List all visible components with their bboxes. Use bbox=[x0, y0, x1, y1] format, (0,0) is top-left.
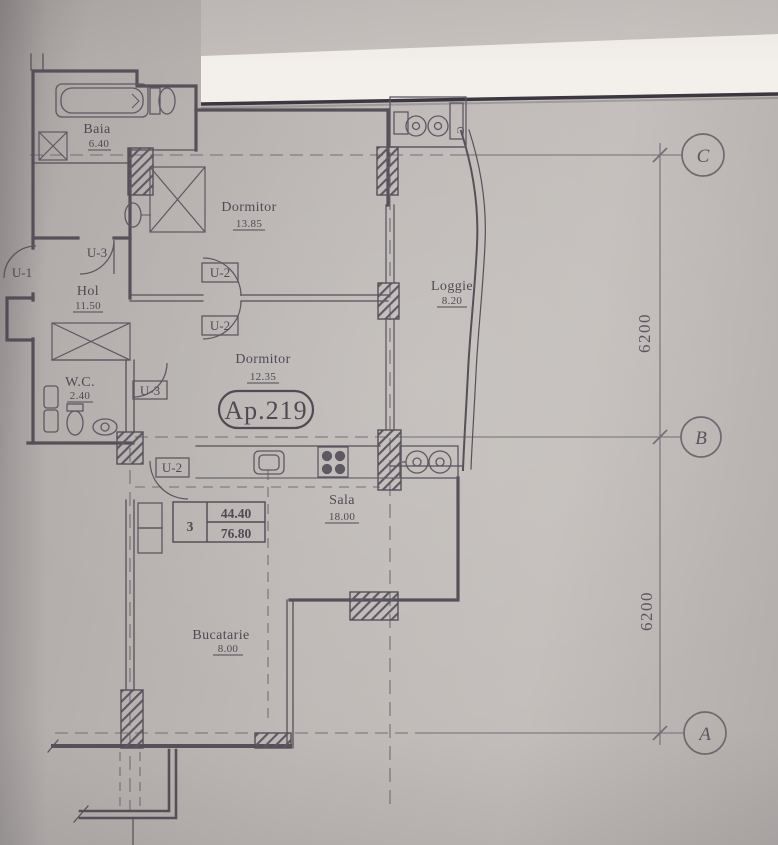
room-area-baia: 6.40 bbox=[89, 138, 110, 150]
wc-radiator-upper bbox=[44, 386, 58, 408]
room-label-dormitor2: Dormitor bbox=[235, 352, 290, 367]
column-corridor bbox=[117, 432, 143, 464]
room-area-dormitor1: 13.85 bbox=[236, 218, 262, 230]
room-label-hol: Hol bbox=[77, 284, 99, 299]
bathtub-inner bbox=[61, 88, 143, 113]
scanned-floor-plan-photo: { "plan": { "apartment": "Ap.219", "room… bbox=[0, 0, 778, 845]
stove-burner-4 bbox=[336, 465, 345, 474]
baia-sink bbox=[159, 88, 175, 114]
ventilation-shafts bbox=[39, 132, 205, 360]
grid-letter-a: A bbox=[697, 724, 711, 745]
balcony-parapet bbox=[80, 750, 176, 818]
kitchen-sink-inner bbox=[259, 455, 279, 470]
wall-top-stubs bbox=[31, 54, 43, 70]
table-living-area: 44.40 bbox=[221, 506, 252, 521]
table-total-area: 76.80 bbox=[221, 526, 252, 541]
washer-drum-2 bbox=[429, 451, 451, 473]
door-tag-u3-hol: U-3 bbox=[87, 245, 107, 260]
white-sheet-edge bbox=[201, 0, 778, 108]
door-tag-u2-kitchen: U-2 bbox=[162, 460, 182, 475]
hatched-columns bbox=[117, 147, 401, 748]
shaft-dormitor-x bbox=[150, 167, 205, 232]
grid-connectors bbox=[660, 155, 684, 733]
bucatarie-cabinet-2 bbox=[138, 528, 162, 553]
apartment-number: Ap.219 bbox=[224, 396, 307, 425]
column-bucatarie-left bbox=[121, 690, 143, 748]
room-area-wc: 2.40 bbox=[70, 390, 91, 402]
bidet bbox=[125, 203, 141, 227]
room-label-sala: Sala bbox=[329, 493, 355, 508]
shaft-baia-x bbox=[39, 132, 67, 160]
room-label-wc: W.C. bbox=[65, 375, 95, 390]
balcony-tick bbox=[74, 806, 88, 822]
wall-sala bbox=[290, 478, 458, 600]
column-loggia-bottom bbox=[378, 430, 401, 490]
loggia-facade-outer bbox=[461, 131, 477, 470]
room-label-bucatarie: Bucatarie bbox=[192, 628, 249, 643]
stove-burner-2 bbox=[336, 452, 345, 461]
washer-drum-1 bbox=[406, 451, 428, 473]
toilet-tank bbox=[67, 404, 83, 411]
column-loggia-top bbox=[377, 147, 398, 195]
wall-mid-bedrooms bbox=[130, 295, 388, 301]
door-tag-u2-upper: U-2 bbox=[210, 265, 230, 280]
shaft-hol-x bbox=[52, 323, 130, 360]
column-bucatarie-right bbox=[255, 733, 291, 748]
column-loggia-mid bbox=[378, 283, 399, 319]
fixtures-layer bbox=[44, 84, 466, 553]
stove-burner-3 bbox=[323, 465, 332, 474]
door-tag-u3-wc: U-3 bbox=[140, 383, 160, 398]
utility-label-c: C bbox=[454, 127, 465, 134]
bucatarie-cabinet-1 bbox=[138, 503, 162, 528]
utility-drum-1 bbox=[406, 116, 426, 136]
table-rooms-count: 3 bbox=[187, 519, 194, 534]
wc-radiator-lower bbox=[44, 410, 58, 432]
room-area-loggie: 8.20 bbox=[442, 295, 463, 307]
wc-basin-drain bbox=[101, 423, 109, 431]
room-label-baia: Baia bbox=[83, 122, 111, 137]
column-sala bbox=[350, 592, 398, 620]
stove-burner-1 bbox=[323, 452, 332, 461]
washer-drum-2-center bbox=[436, 458, 444, 466]
room-label-loggie: Loggie bbox=[431, 279, 473, 294]
room-area-sala: 18.00 bbox=[329, 511, 355, 523]
door-tag-u2-lower: U-2 bbox=[210, 318, 230, 333]
utility-drum-2-center bbox=[435, 123, 442, 130]
washer-drum-1-center bbox=[413, 458, 421, 466]
wc-basin bbox=[93, 419, 117, 435]
door-tag-u1: U-1 bbox=[12, 265, 32, 280]
bathtub-drain bbox=[132, 94, 139, 108]
dimension-ba: 6200 bbox=[637, 591, 656, 631]
loggia-facade-inner bbox=[469, 130, 485, 469]
bathtub bbox=[56, 84, 148, 117]
toilet-bowl bbox=[67, 411, 83, 435]
room-area-hol: 11.50 bbox=[75, 300, 101, 312]
room-area-dormitor2: 12.35 bbox=[250, 371, 276, 383]
utility-drum-1-center bbox=[413, 123, 420, 130]
room-label-dormitor1: Dormitor bbox=[221, 200, 276, 215]
grid-letter-b: B bbox=[695, 428, 707, 449]
grid-letter-c: C bbox=[697, 146, 710, 167]
utility-drum-2 bbox=[428, 116, 448, 136]
entry-alcove bbox=[7, 298, 33, 340]
walls-layer bbox=[7, 54, 485, 845]
floor-plan-drawing: Baia 6.40 Dormitor 13.85 Hol 11.50 W.C. … bbox=[0, 0, 778, 845]
column-baia bbox=[128, 148, 153, 195]
wall-sala-bucatarie bbox=[287, 600, 293, 748]
room-area-bucatarie: 8.00 bbox=[218, 643, 239, 655]
dimension-cb: 6200 bbox=[635, 313, 654, 353]
